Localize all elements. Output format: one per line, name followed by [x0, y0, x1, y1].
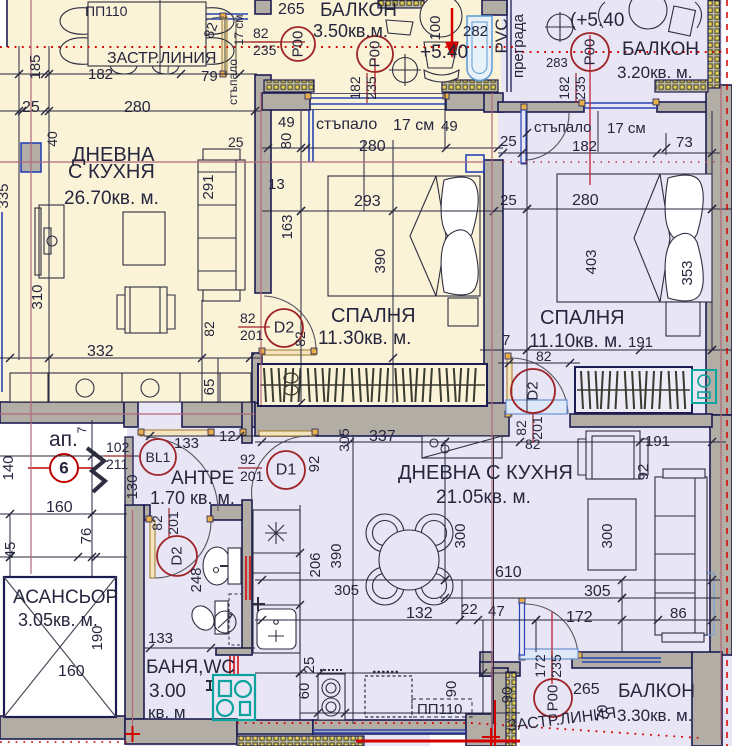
svg-text:3.30кв. м.: 3.30кв. м. [617, 706, 692, 725]
svg-text:337: 337 [369, 428, 396, 445]
svg-text:132: 132 [406, 605, 433, 622]
svg-text:100: 100 [427, 15, 444, 40]
svg-text:3.05кв. м.: 3.05кв. м. [18, 610, 98, 630]
svg-text:стъпало: стъпало [534, 119, 591, 136]
svg-text:17 см: 17 см [607, 120, 646, 137]
svg-text:305: 305 [584, 583, 611, 600]
svg-text:1.70 кв. м.: 1.70 кв. м. [150, 488, 235, 508]
svg-text:191: 191 [645, 433, 670, 450]
svg-text:ПП110: ПП110 [85, 3, 128, 19]
svg-text:201: 201 [240, 468, 264, 484]
svg-text:390: 390 [328, 543, 345, 568]
svg-text:610: 610 [495, 564, 522, 581]
svg-text:201: 201 [165, 511, 181, 535]
svg-text:133: 133 [148, 630, 173, 647]
svg-text:БАЛКОН: БАЛКОН [618, 681, 695, 702]
svg-text:182: 182 [88, 66, 113, 83]
svg-text:60: 60 [296, 683, 313, 700]
svg-text:191: 191 [628, 334, 653, 351]
svg-text:282: 282 [463, 23, 488, 40]
svg-text:49: 49 [278, 114, 295, 131]
svg-text:76: 76 [78, 528, 95, 545]
svg-text:82: 82 [240, 310, 256, 326]
svg-text:172: 172 [566, 609, 593, 626]
svg-text:332: 332 [87, 343, 114, 360]
svg-text:353: 353 [679, 260, 696, 285]
svg-text:235: 235 [363, 76, 379, 100]
svg-text:305: 305 [336, 428, 352, 452]
svg-text:6: 6 [59, 459, 68, 478]
svg-text:БАЛКОН: БАЛКОН [320, 0, 397, 21]
svg-text:182: 182 [347, 76, 363, 100]
svg-text:133: 133 [174, 435, 199, 452]
svg-text:47: 47 [488, 603, 505, 620]
svg-text:49: 49 [441, 118, 458, 135]
svg-text:ЗАСТР.ЛИНИЯ: ЗАСТР.ЛИНИЯ [107, 50, 216, 67]
svg-text:БАЛКОН: БАЛКОН [622, 39, 699, 60]
svg-text:11.30кв. м.: 11.30кв. м. [318, 328, 411, 349]
svg-text:С КУХНЯ: С КУХНЯ [68, 161, 155, 183]
svg-text:280: 280 [359, 138, 386, 155]
svg-text:235: 235 [253, 42, 277, 58]
svg-text:283: 283 [546, 55, 568, 70]
svg-text:160: 160 [58, 663, 85, 680]
svg-text:90: 90 [499, 687, 516, 704]
svg-text:P00: P00 [545, 685, 562, 712]
svg-text:206: 206 [307, 552, 324, 577]
svg-text:280: 280 [572, 192, 599, 209]
svg-text:291: 291 [200, 174, 217, 199]
svg-text:25: 25 [500, 133, 517, 150]
svg-text:82: 82 [536, 348, 552, 364]
svg-text:300: 300 [452, 523, 469, 548]
svg-text:82: 82 [513, 420, 529, 436]
svg-text:65: 65 [201, 379, 218, 396]
svg-text:310: 310 [29, 284, 46, 309]
svg-text:ПП110: ПП110 [417, 701, 462, 718]
svg-text:17 см: 17 см [393, 117, 434, 134]
svg-text:201: 201 [529, 416, 545, 440]
svg-text:12: 12 [219, 428, 236, 445]
svg-text:D2: D2 [169, 546, 186, 565]
svg-text:182: 182 [572, 138, 597, 155]
svg-text:182: 182 [556, 76, 572, 100]
svg-text:стъпало: стъпало [316, 116, 377, 133]
svg-text:преграда: преграда [510, 13, 527, 78]
svg-text:305: 305 [334, 582, 359, 599]
svg-text:СПАЛНЯ: СПАЛНЯ [331, 305, 416, 327]
svg-text:26.70кв. м.: 26.70кв. м. [64, 188, 159, 209]
svg-text:172: 172 [532, 654, 548, 678]
svg-text:3.20кв. м.: 3.20кв. м. [617, 63, 692, 82]
svg-text:82: 82 [292, 331, 308, 347]
svg-text:201: 201 [240, 327, 264, 343]
svg-text:стъпало: стъпало [226, 59, 240, 105]
svg-text:АСАНСЬОР: АСАНСЬОР [13, 587, 118, 608]
svg-text:79: 79 [201, 68, 218, 85]
svg-text:17 см: 17 см [232, 15, 246, 46]
svg-text:13: 13 [268, 176, 285, 193]
svg-text:160: 160 [46, 499, 73, 516]
svg-text:40: 40 [44, 131, 60, 147]
svg-text:21.05кв. м.: 21.05кв. м. [436, 487, 531, 508]
svg-text:92: 92 [306, 456, 323, 473]
svg-text:25: 25 [500, 192, 517, 209]
svg-text:D1: D1 [276, 462, 297, 479]
svg-text:140: 140 [0, 455, 17, 480]
svg-text:70: 70 [594, 705, 611, 722]
svg-text:403: 403 [583, 249, 600, 274]
svg-text:P00: P00 [582, 39, 599, 66]
svg-text:390: 390 [372, 248, 389, 273]
svg-text:45: 45 [2, 542, 19, 559]
svg-text:СПАЛНЯ: СПАЛНЯ [540, 307, 625, 329]
svg-text:90: 90 [443, 681, 460, 698]
svg-text:82: 82 [201, 321, 217, 337]
svg-text:335: 335 [0, 183, 12, 208]
svg-text:7: 7 [502, 332, 510, 349]
svg-text:265: 265 [278, 1, 305, 18]
svg-text:82: 82 [149, 515, 165, 531]
svg-text:265: 265 [573, 681, 600, 698]
svg-text:235: 235 [548, 654, 564, 678]
svg-text:235: 235 [572, 76, 588, 100]
svg-text:P00: P00 [290, 31, 307, 58]
svg-text:3.50кв.м.: 3.50кв.м. [313, 21, 388, 41]
svg-text:92: 92 [240, 451, 256, 467]
svg-text:ДНЕВНА С КУХНЯ: ДНЕВНА С КУХНЯ [398, 462, 573, 484]
svg-text:BL1: BL1 [146, 449, 171, 465]
svg-text:293: 293 [354, 193, 381, 210]
svg-text:PVC: PVC [492, 19, 511, 54]
svg-text:92: 92 [635, 464, 652, 481]
svg-text:АНТРЕ: АНТРЕ [171, 468, 234, 489]
svg-text:248: 248 [188, 567, 205, 592]
svg-text:86: 86 [670, 605, 687, 622]
svg-text:280: 280 [124, 99, 151, 116]
svg-text:3.00: 3.00 [149, 681, 186, 702]
svg-text:БАНЯ,WC: БАНЯ,WC [146, 657, 235, 678]
svg-text:300: 300 [599, 523, 616, 548]
svg-text:25: 25 [22, 99, 40, 116]
svg-text:130: 130 [124, 474, 141, 499]
svg-text:25: 25 [228, 134, 244, 150]
svg-text:25: 25 [301, 657, 318, 674]
svg-text:ап.: ап. [49, 428, 78, 451]
svg-text:211: 211 [106, 456, 129, 472]
svg-text:102: 102 [106, 439, 130, 455]
svg-text:73: 73 [676, 134, 693, 151]
svg-text:7: 7 [75, 426, 89, 433]
svg-text:190: 190 [89, 625, 106, 650]
svg-text:82: 82 [253, 25, 269, 41]
svg-text:80: 80 [278, 133, 295, 150]
svg-text:(+5.40: (+5.40 [570, 10, 624, 31]
svg-text:163: 163 [279, 214, 296, 239]
svg-text:кв. м: кв. м [148, 703, 186, 722]
svg-text:+5.40: +5.40 [420, 42, 468, 63]
svg-text:D2: D2 [525, 381, 542, 400]
svg-text:185: 185 [27, 54, 44, 79]
svg-text:22: 22 [461, 601, 478, 618]
svg-text:P00: P00 [367, 41, 384, 68]
